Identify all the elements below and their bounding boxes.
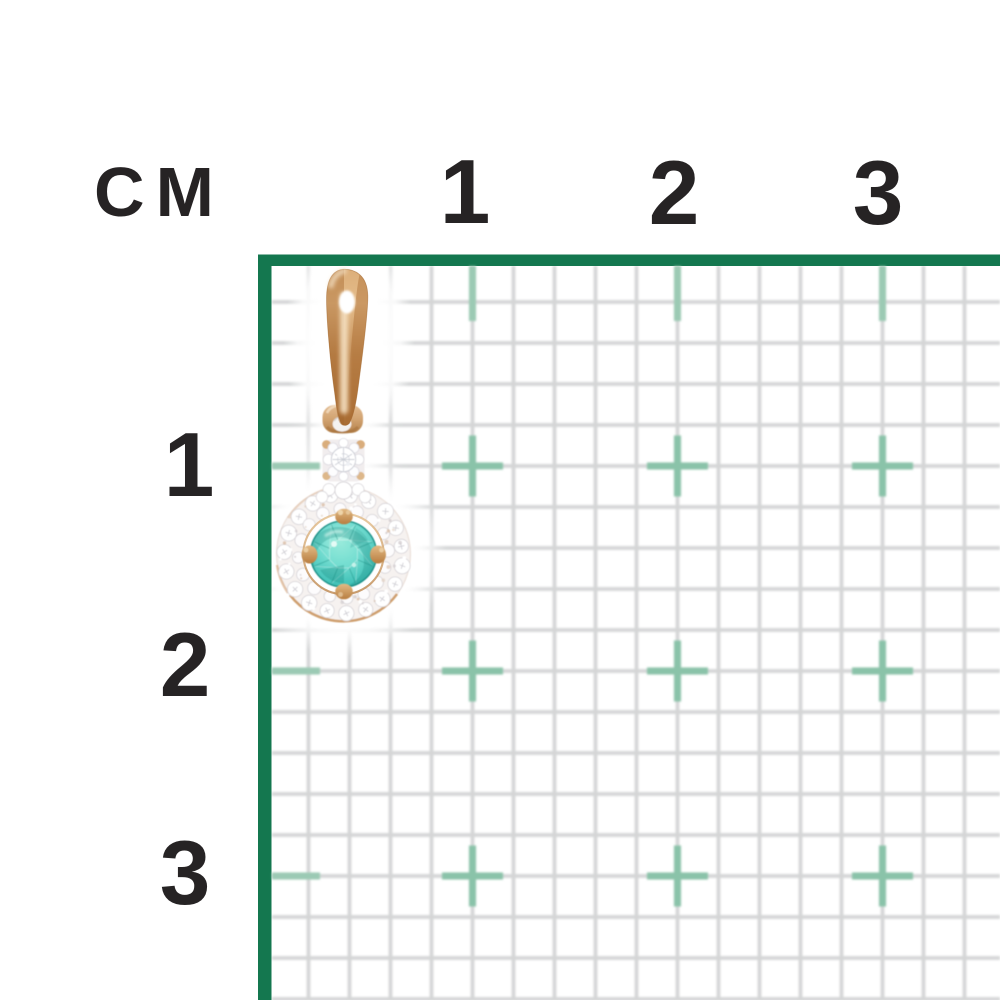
svg-text:3: 3	[160, 823, 211, 924]
svg-text:1: 1	[440, 142, 491, 243]
svg-text:2: 2	[160, 615, 211, 716]
svg-text:1: 1	[164, 415, 215, 516]
svg-text:СМ: СМ	[94, 153, 226, 231]
svg-text:2: 2	[649, 143, 700, 244]
svg-text:3: 3	[853, 143, 904, 244]
